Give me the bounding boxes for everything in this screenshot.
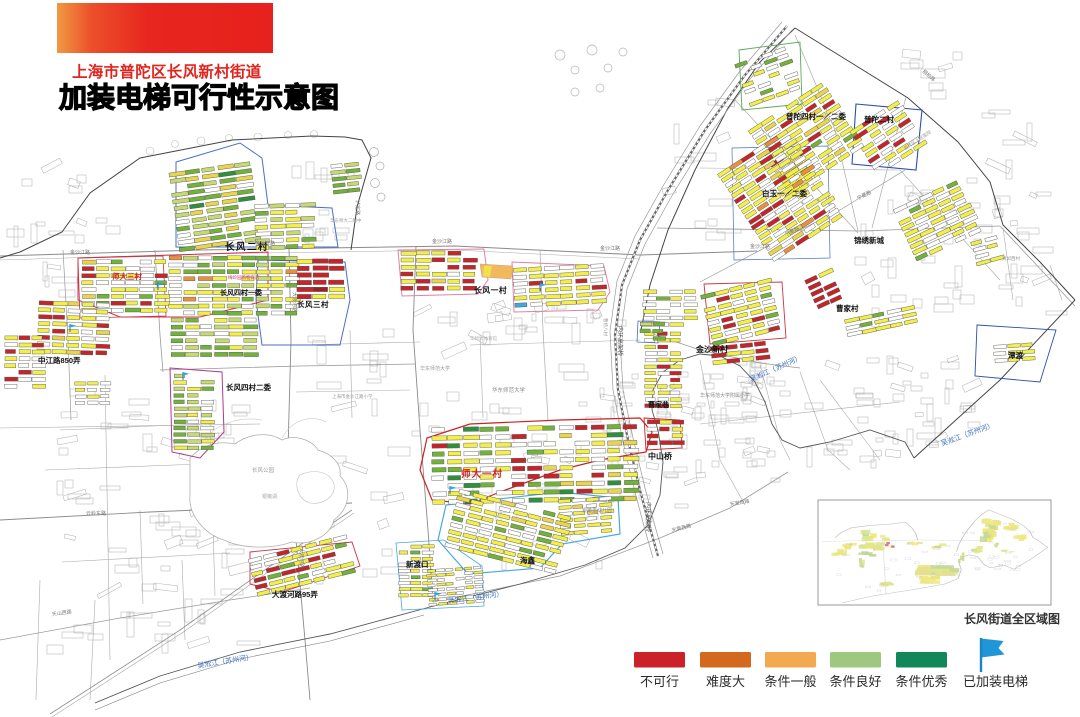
svg-text:长风街道全区域图: 长风街道全区域图	[964, 611, 1060, 626]
svg-text:云岭东路: 云岭东路	[86, 510, 106, 517]
svg-text:内环高架桥: 内环高架桥	[616, 326, 624, 356]
svg-text:天山西路: 天山西路	[51, 608, 72, 618]
svg-text:上海市金沙江路小学: 上海市金沙江路小学	[332, 393, 373, 400]
svg-text:潭渡: 潭渡	[1008, 350, 1023, 360]
svg-text:不可行: 不可行	[640, 674, 679, 689]
svg-text:金沙江路: 金沙江路	[432, 238, 452, 245]
svg-text:长风四村二委: 长风四村二委	[226, 382, 271, 392]
svg-text:金沙江路: 金沙江路	[70, 249, 90, 256]
svg-text:已加装电梯: 已加装电梯	[963, 674, 1028, 689]
svg-text:金沙新村: 金沙新村	[695, 344, 728, 354]
svg-text:光复西路: 光复西路	[671, 522, 692, 534]
svg-text:天宝西路: 天宝西路	[729, 498, 750, 508]
svg-text:大渡河路: 大渡河路	[291, 292, 298, 312]
svg-text:梅岭园购物商店: 梅岭园购物商店	[228, 274, 260, 281]
svg-text:新渡口: 新渡口	[406, 559, 429, 569]
svg-text:金沙江路: 金沙江路	[600, 245, 620, 252]
svg-text:华东师大二附中: 华东师大二附中	[330, 217, 362, 224]
svg-text:桐柏路: 桐柏路	[921, 68, 937, 83]
svg-text:中江路850弄: 中江路850弄	[38, 355, 81, 365]
svg-text:条件一般: 条件一般	[765, 674, 817, 689]
svg-text:银锄里幼儿园: 银锄里幼儿园	[582, 507, 612, 514]
svg-text:吴淞江（苏州河）: 吴淞江（苏州河）	[197, 652, 254, 670]
svg-text:银锄湖: 银锄湖	[262, 493, 277, 500]
svg-text:华东师范大学附属小学: 华东师范大学附属小学	[700, 392, 750, 399]
svg-text:难度大: 难度大	[706, 674, 745, 689]
svg-text:华东师范大学: 华东师范大学	[420, 365, 450, 372]
svg-text:内环高架桥: 内环高架桥	[644, 502, 652, 532]
svg-text:中山桥: 中山桥	[648, 451, 673, 461]
svg-text:锦绣新城: 锦绣新城	[854, 235, 884, 245]
svg-text:吴淞江（苏州河）: 吴淞江（苏州河）	[940, 420, 996, 448]
svg-text:长风四村一委: 长风四村一委	[220, 288, 262, 297]
svg-text:条件良好: 条件良好	[830, 674, 882, 689]
svg-text:金沙江路: 金沙江路	[750, 243, 770, 250]
svg-text:普陀四村一／二委: 普陀四村一／二委	[786, 111, 846, 121]
svg-text:曹家巷: 曹家巷	[648, 400, 670, 409]
svg-text:长风公园: 长风公园	[252, 466, 275, 474]
svg-text:师大三村: 师大三村	[112, 271, 142, 281]
svg-text:大渡河路95弄: 大渡河路95弄	[272, 589, 318, 599]
svg-text:普陀二村: 普陀二村	[864, 114, 894, 124]
svg-text:金沙江路: 金沙江路	[255, 240, 275, 247]
svg-text:曹家村: 曹家村	[836, 303, 859, 313]
svg-text:长风一村: 长风一村	[474, 285, 507, 295]
svg-text:华师大体育馆: 华师大体育馆	[470, 335, 497, 342]
svg-text:白玉一／二委: 白玉一／二委	[762, 188, 807, 198]
svg-text:海鑫: 海鑫	[520, 555, 535, 565]
svg-text:曹杨八村: 曹杨八村	[602, 318, 609, 336]
svg-text:师大一村: 师大一村	[461, 468, 503, 480]
svg-text:华东师范大学: 华东师范大学	[492, 386, 526, 394]
svg-text:大渡河路: 大渡河路	[298, 548, 305, 568]
svg-text:真如西村: 真如西村	[1002, 255, 1020, 262]
svg-text:长风三村: 长风三村	[297, 299, 329, 309]
svg-text:泸定路: 泸定路	[354, 200, 361, 215]
svg-text:宁夏路: 宁夏路	[856, 189, 873, 202]
svg-text:条件优秀: 条件优秀	[896, 674, 948, 689]
